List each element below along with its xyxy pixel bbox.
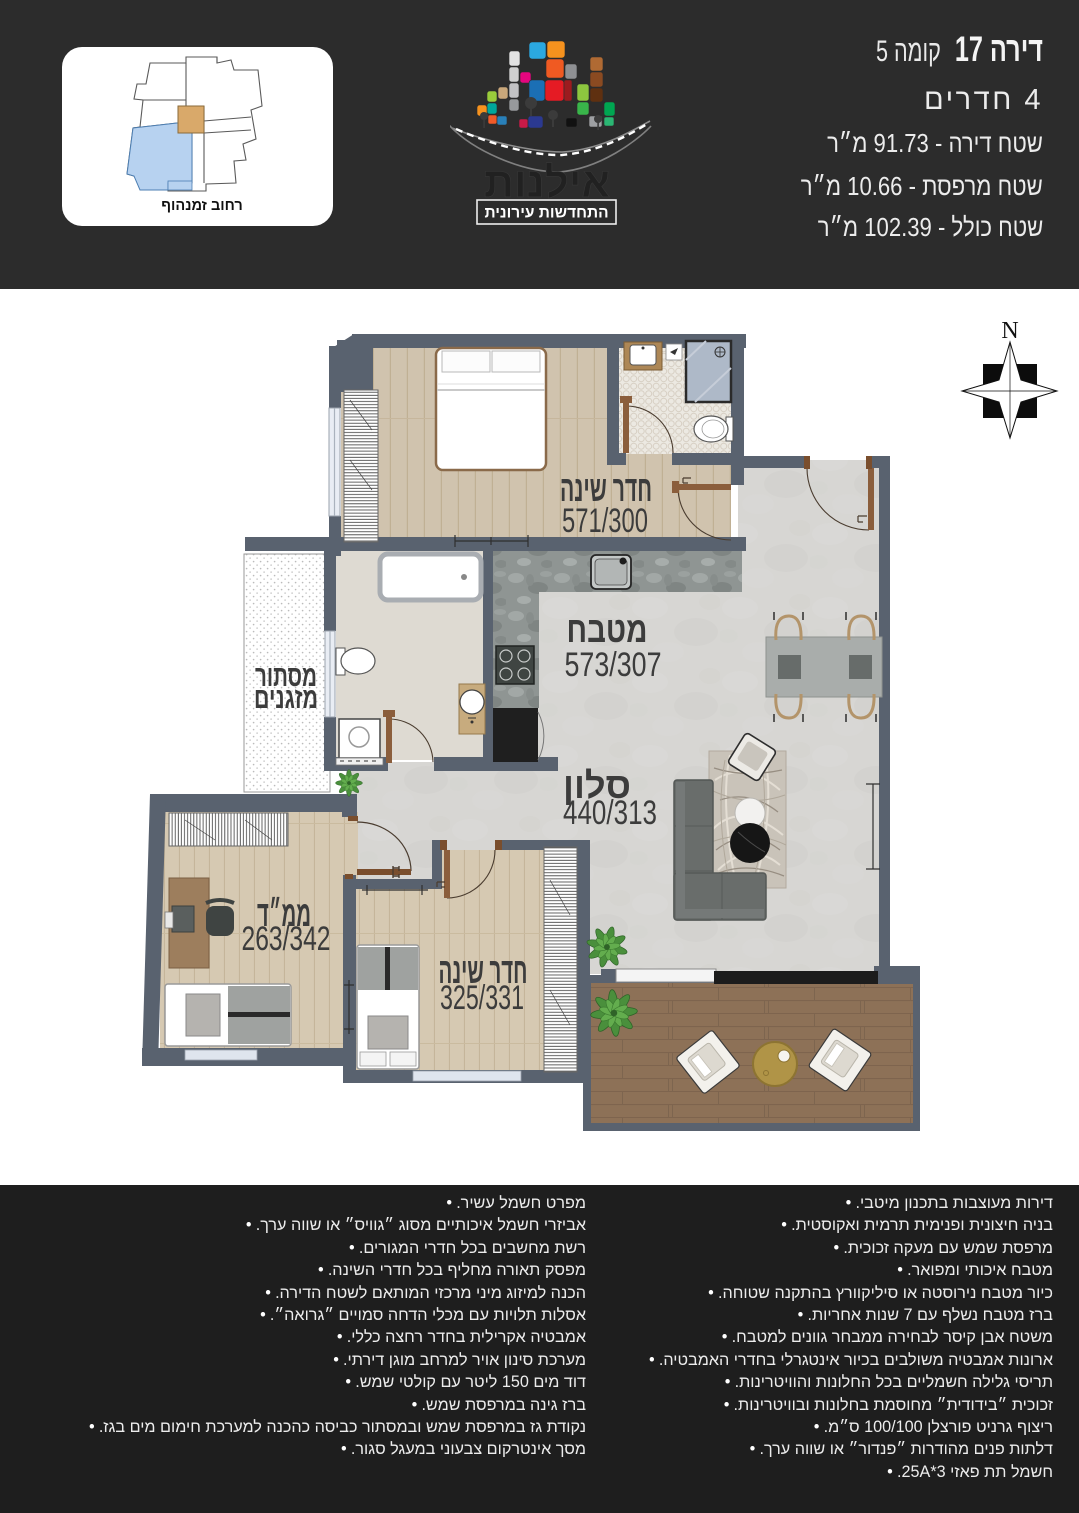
svg-text:573/307: 573/307	[565, 646, 662, 684]
svg-text:263/342: 263/342	[242, 920, 331, 958]
svg-text:N: N	[1001, 318, 1018, 344]
svg-text:רחוב זמנהוף: רחוב זמנהוף	[161, 198, 243, 214]
svg-text:571/300: 571/300	[562, 502, 648, 540]
svg-text:מטבח: מטבח	[567, 609, 648, 650]
svg-text:מזגנים: מזגנים	[254, 682, 318, 715]
svg-text:325/331: 325/331	[440, 979, 524, 1017]
svg-text:440/313: 440/313	[563, 794, 657, 832]
svg-text:אילנות: אילנות	[484, 159, 610, 206]
svg-text:התחדשות עירונית: התחדשות עירונית	[484, 205, 608, 222]
